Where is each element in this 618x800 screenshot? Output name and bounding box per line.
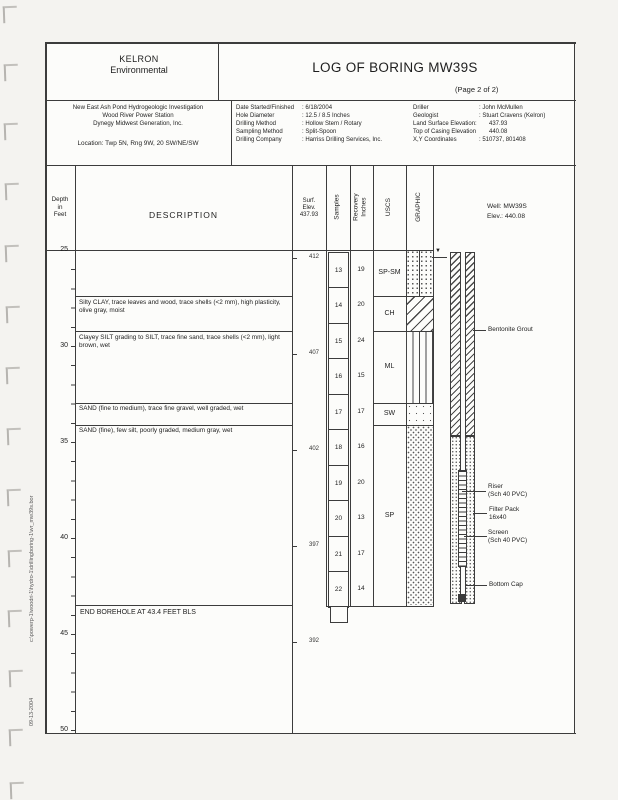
binding-mark	[7, 489, 22, 506]
info-label: X,Y Coordinates	[413, 136, 479, 144]
info-row: Geologist: Stuart Cravens (Kelron)	[413, 112, 573, 120]
depth-label: 25	[46, 246, 68, 253]
page-title: LOG OF BORING MW39S	[250, 60, 540, 76]
sample-box: 18	[328, 429, 349, 466]
binding-mark	[10, 782, 25, 799]
info-row: X,Y Coordinates: 510737, 801408	[413, 136, 573, 144]
info-value: : Stuart Cravens (Kelron)	[479, 112, 545, 120]
layer-boundary	[75, 403, 292, 404]
project-line1: New East Ash Pond Hydrogeologic Investig…	[47, 104, 229, 111]
layer-continuation-line	[75, 250, 292, 251]
water-table-line	[432, 257, 447, 258]
uscs-graphic-boundary	[373, 425, 433, 426]
well-screen	[458, 470, 467, 567]
uscs-graphic-boundary	[373, 331, 433, 332]
graphic-column-header: GRAPHIC	[384, 172, 454, 242]
sample-box: 13	[328, 252, 349, 288]
depth-label: 45	[46, 630, 68, 637]
binding-mark	[5, 245, 20, 262]
info-row: Date Started/Finished: 6/18/2004	[236, 104, 408, 112]
leader-filterpack	[473, 513, 487, 514]
depth-label: 40	[46, 534, 68, 541]
binding-mark	[9, 729, 24, 746]
uscs-graphic-boundary	[373, 296, 433, 297]
info-value: : 510737, 801408	[479, 136, 526, 144]
recovery-value: 15	[351, 358, 371, 393]
end-borehole-note: END BOREHOLE AT 43.4 FEET BLS	[80, 609, 196, 617]
sample-box: 20	[328, 500, 349, 537]
layer-boundary	[75, 425, 292, 426]
recovery-value: 20	[351, 287, 371, 322]
binding-mark	[6, 306, 21, 323]
info-row: Top of Casing Elevation440.08	[413, 128, 573, 136]
info-row: Drilling Method: Hollow Stem / Rotary	[236, 120, 408, 128]
description-column-header: DESCRIPTION	[75, 210, 292, 220]
samples-col-border	[326, 165, 327, 607]
recovery-value: 19	[351, 252, 371, 286]
inforow-bottom-border	[45, 165, 576, 166]
layer-boundary	[75, 331, 292, 332]
sample-box: 14	[328, 287, 349, 324]
well-id-label: Well: MW39S	[487, 203, 527, 211]
binding-mark	[4, 123, 19, 140]
info-divider	[231, 100, 232, 165]
layer-boundary	[75, 296, 292, 297]
recovery-value: 17	[351, 536, 371, 570]
sample-tail-box	[330, 606, 348, 623]
info-value: 437.93	[489, 120, 507, 128]
site-info-block: Driller: John McMullen Geologist: Stuart…	[413, 104, 573, 144]
binding-mark	[3, 6, 18, 23]
uscs-label: SP-SM	[373, 269, 406, 276]
layer-description-ml: Clayey SILT grading to SILT, trace fine …	[79, 334, 281, 350]
recovery-value: 20	[351, 465, 371, 499]
info-value: : 12.5 / 8.5 Inches	[302, 112, 350, 120]
sample-box: 19	[328, 465, 349, 501]
margin-file-path: c:\powerp-1\woodri-1\hydro-1\drillingbor…	[29, 496, 35, 642]
sample-box: 21	[328, 536, 349, 572]
info-value: : 6/18/2004	[302, 104, 332, 112]
depth-label: 30	[46, 342, 68, 349]
company-tagline: Environmental	[60, 65, 218, 76]
leader-grout	[473, 330, 486, 331]
elev-tick	[293, 258, 297, 259]
sample-box: 16	[328, 358, 349, 395]
graphic-spsm-divider	[419, 250, 420, 296]
info-value: : Hollow Stem / Rotary	[302, 120, 362, 128]
info-value: : Harriss Drilling Services, Inc.	[302, 136, 382, 144]
well-label-riser: Riser (Sch 40 PVC)	[488, 483, 527, 500]
elev-tick	[293, 450, 297, 451]
header-divider	[218, 42, 219, 100]
sheet-right-border	[574, 42, 575, 734]
info-label: Land Surface Elevation:	[413, 120, 489, 128]
uscs-label: SW	[373, 410, 406, 417]
elev-label: 392	[299, 638, 319, 644]
sheet-bottom-border	[45, 733, 576, 734]
graphic-band-ml	[406, 331, 433, 403]
info-row: Driller: John McMullen	[413, 104, 573, 112]
graphic-band-ch	[406, 296, 433, 331]
project-line3: Dynegy Midwest Generation, Inc.	[47, 120, 229, 127]
elev-label: 407	[299, 350, 319, 356]
info-value: 440.08	[489, 128, 507, 136]
recovery-value: 14	[351, 571, 371, 606]
company-name: KELRON	[60, 54, 218, 65]
elev-label: 412	[299, 254, 319, 260]
water-table-icon: ▼	[435, 248, 441, 255]
info-label: Geologist	[413, 112, 479, 120]
info-label: Drilling Method	[236, 120, 302, 128]
info-label: Sampling Method	[236, 128, 302, 136]
info-value: : John McMullen	[479, 104, 523, 112]
drilling-info-block: Date Started/Finished: 6/18/2004 Hole Di…	[236, 104, 408, 144]
margin-date: 09-13-2004	[29, 698, 35, 726]
desc-col-border	[292, 165, 293, 733]
depth-minor-ticks	[71, 250, 75, 732]
well-label-grout: Bentonite Grout	[488, 326, 533, 334]
sample-box: 15	[328, 323, 349, 359]
elev-tick	[293, 546, 297, 547]
info-label: Top of Casing Elevation	[413, 128, 489, 136]
leader-bottomcap	[465, 585, 487, 586]
uscs-label: SP	[373, 512, 406, 519]
leader-screen	[464, 536, 487, 537]
depth-label: 35	[46, 438, 68, 445]
elev-tick	[293, 642, 297, 643]
info-row: Land Surface Elevation:437.93	[413, 120, 573, 128]
graphic-band-sw	[406, 403, 433, 425]
recovery-value: 17	[351, 394, 371, 428]
uscs-col-border	[373, 165, 374, 607]
uscs-label: CH	[373, 310, 406, 317]
binding-mark	[4, 64, 19, 81]
layer-description-sw: SAND (fine to medium), trace fine gravel…	[79, 405, 281, 413]
graphic-band-sp	[406, 425, 433, 605]
uscs-label: ML	[373, 363, 406, 370]
well-elev-label: Elev.: 440.08	[487, 213, 525, 221]
sample-box: 17	[328, 394, 349, 430]
binding-mark	[5, 183, 20, 200]
info-label: Drilling Company	[236, 136, 302, 144]
well-label-bottomcap: Bottom Cap	[489, 581, 523, 589]
info-row: Hole Diameter: 12.5 / 8.5 Inches	[236, 112, 408, 120]
binding-mark	[6, 367, 21, 384]
elev-label: 397	[299, 542, 319, 548]
info-value: : Split-Spoon	[302, 128, 336, 136]
info-row: Drilling Company: Harriss Drilling Servi…	[236, 136, 408, 144]
elev-tick	[293, 354, 297, 355]
binding-mark	[7, 428, 22, 445]
elev-label: 402	[299, 446, 319, 452]
recovery-value: 16	[351, 429, 371, 464]
well-label-screen: Screen (Sch 40 PVC)	[488, 529, 527, 546]
header-bottom-border	[45, 100, 576, 101]
recovery-value: 24	[351, 323, 371, 357]
sheet-top-border	[45, 42, 576, 44]
well-bottom-cap	[458, 594, 465, 602]
end-borehole-line	[75, 605, 292, 606]
binding-mark	[8, 550, 23, 567]
well-label-filterpack: Filter Pack 16x40	[489, 506, 519, 523]
uscs-graphic-boundary	[373, 403, 433, 404]
project-line2: Wood River Power Station	[47, 112, 229, 119]
layer-description-ch: Silty CLAY, trace leaves and wood, trace…	[79, 299, 281, 315]
info-label: Driller	[413, 104, 479, 112]
sample-box: 22	[328, 571, 349, 608]
graphic-col-right-border	[433, 165, 434, 607]
binding-mark	[8, 610, 23, 627]
info-label: Hole Diameter	[236, 112, 302, 120]
project-location: Location: Twp 5N, Rng 9W, 20 SW/NE/SW	[47, 140, 229, 148]
layer-description-sp: SAND (fine), few silt, poorly graded, me…	[79, 427, 281, 435]
depth-label: 50	[46, 726, 68, 733]
recovery-value: 13	[351, 500, 371, 535]
page-number: (Page 2 of 2)	[455, 85, 498, 94]
leader-riser	[462, 491, 486, 492]
info-row: Sampling Method: Split-Spoon	[236, 128, 408, 136]
columns-bottom-border	[326, 606, 433, 607]
info-label: Date Started/Finished	[236, 104, 302, 112]
depth-column-header: Depth in Feet	[46, 196, 74, 219]
binding-mark	[9, 670, 24, 687]
